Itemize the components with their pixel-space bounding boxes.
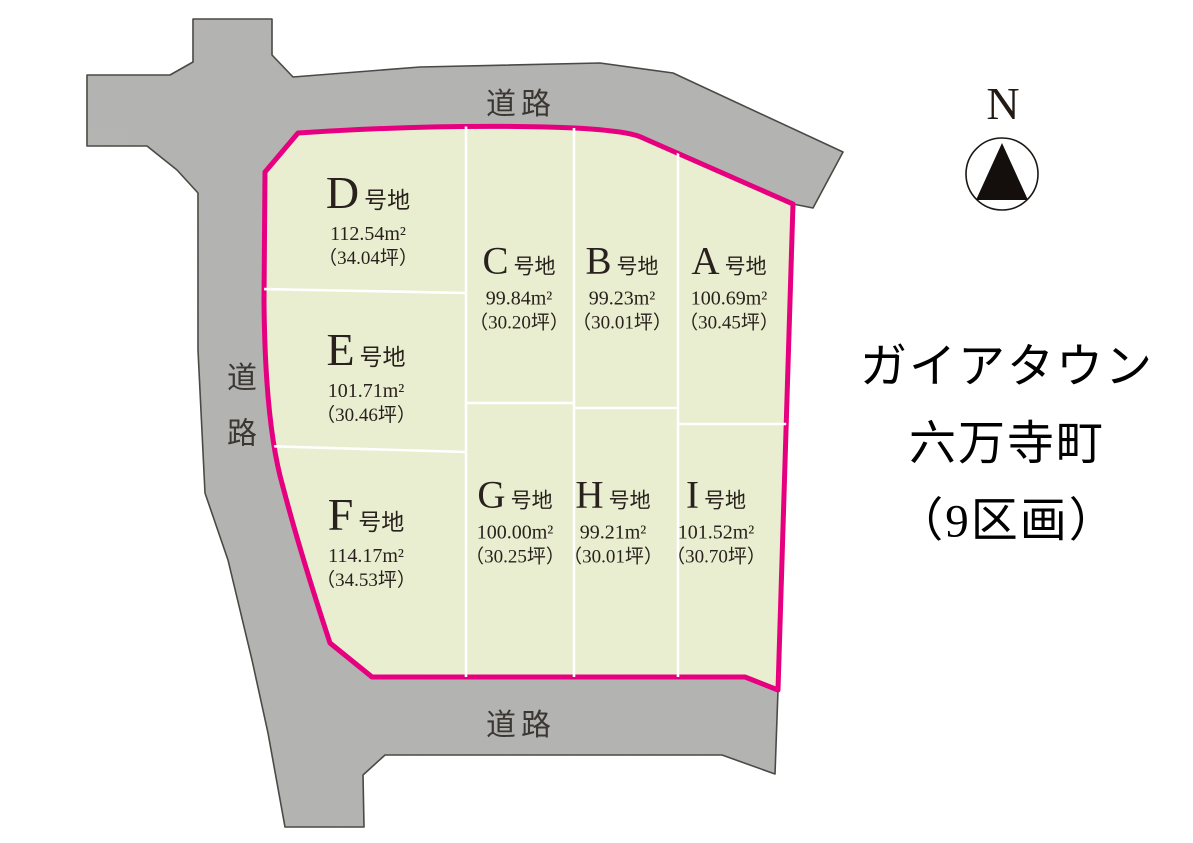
plot-label-A: A号地 100.69m² （30.45坪） <box>679 241 779 336</box>
plot-name: C号地 <box>469 241 569 284</box>
compass-north-label: N <box>986 81 1019 127</box>
plot-area-size: 114.17m² <box>316 542 416 569</box>
plot-area-size: 100.69m² <box>679 286 779 313</box>
plot-letter: I <box>686 475 699 518</box>
plot-letter: H <box>575 475 603 518</box>
plot-name: G号地 <box>465 475 565 518</box>
plot-area-tsubo: （34.53坪） <box>316 569 416 592</box>
plot-label-B: B号地 99.23m² （30.01坪） <box>572 241 672 336</box>
plot-area-tsubo: （30.46坪） <box>316 404 416 427</box>
plot-name: I号地 <box>666 475 766 518</box>
plot-name: D号地 <box>318 168 418 219</box>
plot-label-F: F号地 114.17m² （34.53坪） <box>316 490 416 592</box>
road-label-left: 道路 <box>216 362 260 473</box>
plot-area-tsubo: （34.04坪） <box>318 247 418 270</box>
plot-area-size: 99.21m² <box>563 520 663 547</box>
site-title-line1: ガイアタウン <box>860 330 1154 407</box>
plot-label-E: E号地 101.71m² （30.46坪） <box>316 325 416 427</box>
plot-letter: C <box>482 241 508 284</box>
plot-area-tsubo: （30.45坪） <box>679 313 779 336</box>
plot-name: B号地 <box>572 241 672 284</box>
plot-area-tsubo: （30.01坪） <box>572 313 672 336</box>
plot-area-size: 101.52m² <box>666 520 766 547</box>
plot-area-tsubo: （30.01坪） <box>563 547 663 570</box>
road-label-bottom: 道路 <box>486 700 556 744</box>
plot-area-tsubo: （30.20坪） <box>469 313 569 336</box>
site-title: ガイアタウン 六万寺町 （9区画） <box>860 330 1154 561</box>
plot-suffix: 号地 <box>360 345 406 370</box>
plot-suffix: 号地 <box>617 256 659 279</box>
plot-suffix: 号地 <box>704 490 746 513</box>
site-title-line3: （9区画） <box>860 484 1154 561</box>
plot-area-size: 100.00m² <box>465 520 565 547</box>
plot-suffix: 号地 <box>514 256 556 279</box>
site-title-line2: 六万寺町 <box>860 407 1154 484</box>
plot-label-G: G号地 100.00m² （30.25坪） <box>465 475 565 570</box>
plot-name: H号地 <box>563 475 663 518</box>
compass <box>966 138 1038 210</box>
plot-suffix: 号地 <box>609 490 651 513</box>
plot-name: A号地 <box>679 241 779 284</box>
plot-name: E号地 <box>316 325 416 376</box>
road-label-top: 道路 <box>486 79 556 123</box>
plot-area-size: 99.23m² <box>572 286 672 313</box>
plot-label-I: I号地 101.52m² （30.70坪） <box>666 475 766 570</box>
plot-letter: B <box>585 241 611 284</box>
plot-area-tsubo: （30.25坪） <box>465 547 565 570</box>
plot-suffix: 号地 <box>358 510 404 535</box>
plot-area-tsubo: （30.70坪） <box>666 547 766 570</box>
plot-area-size: 112.54m² <box>318 220 418 247</box>
plot-suffix: 号地 <box>364 188 410 213</box>
plot-label-C: C号地 99.84m² （30.20坪） <box>469 241 569 336</box>
plot-suffix: 号地 <box>725 256 767 279</box>
plot-letter: D <box>326 168 359 219</box>
plot-suffix: 号地 <box>511 490 553 513</box>
plot-letter: G <box>477 475 505 518</box>
plot-label-H: H号地 99.21m² （30.01坪） <box>563 475 663 570</box>
plot-letter: A <box>691 241 719 284</box>
plot-name: F号地 <box>316 490 416 541</box>
plot-label-D: D号地 112.54m² （34.04坪） <box>318 168 418 270</box>
plot-area-size: 99.84m² <box>469 286 569 313</box>
plot-area-size: 101.71m² <box>316 377 416 404</box>
plot-letter: F <box>328 490 354 541</box>
plot-letter: E <box>326 325 354 376</box>
